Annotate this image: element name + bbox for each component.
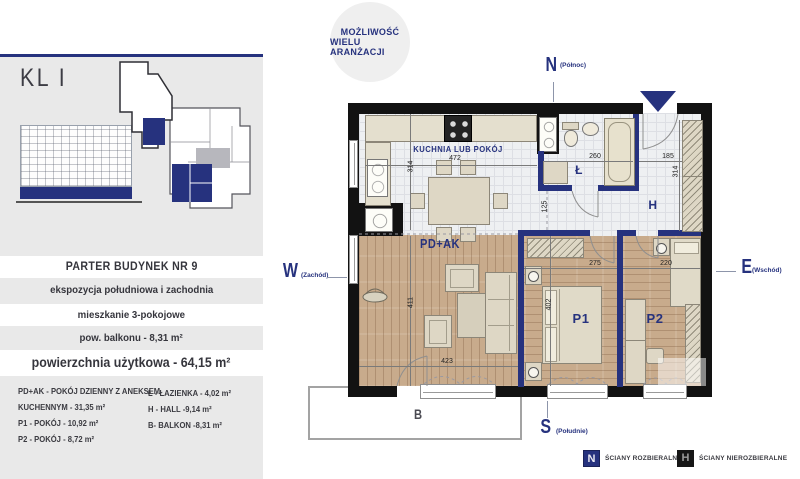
p2-door-arc <box>636 236 658 258</box>
badge-line2: WIELU ARANŻACJI <box>330 37 410 57</box>
door-swings-overlay <box>348 103 712 397</box>
compass-west: W <box>283 260 298 283</box>
entrance-door-arc <box>643 114 678 149</box>
dim-kitchen-depth: 314 <box>408 152 415 182</box>
compass-west-line <box>327 277 347 278</box>
compass-east: E <box>741 256 752 279</box>
legend-item: H - HALL -9,14 m² <box>148 401 231 417</box>
dim-line <box>365 165 537 166</box>
dim-line <box>359 366 518 367</box>
room-legend-col2: Ł - ŁAZIENKA - 4,02 m² H - HALL -9,14 m²… <box>148 385 240 433</box>
dim-line <box>524 268 617 269</box>
balcony-label: B <box>414 406 422 422</box>
room-label-kitchen: KUCHNIA LUB POKÓJ <box>413 144 503 154</box>
info-row-rooms: mieszkanie 3-pokojowe <box>0 304 263 326</box>
floorplan-page: KL I PARTER BUDYNEK NR 9 ekspozycja połu… <box>0 0 800 479</box>
compass-east-line <box>716 271 736 272</box>
compass-south-label: (Południe) <box>556 428 588 435</box>
radiator-p1 <box>549 378 606 385</box>
legend-item: B- BALKON -8,31 m² <box>148 417 231 433</box>
room-label-living: PD+AK <box>415 236 466 251</box>
dim-entry-width: 185 <box>648 153 688 160</box>
dim-bath-width: 260 <box>575 153 615 160</box>
arrangement-badge: MOŻLIWOŚĆ WIELU ARANŻACJI <box>330 2 410 82</box>
elevation-ground-line <box>16 201 142 203</box>
dim-living-width: 423 <box>427 358 467 365</box>
legend-removable-walls-label: ŚCIANY ROZBIERALNE <box>605 455 682 462</box>
info-row-balcony-area: pow. balkonu - 8,31 m² <box>0 329 263 347</box>
legend-item: PD+AK - POKÓJ DZIENNY Z ANEKSEM <box>18 383 160 399</box>
info-row-title: PARTER BUDYNEK NR 9 <box>0 256 263 278</box>
compass-north-line <box>553 82 554 102</box>
legend-item: KUCHENNYM - 31,35 m² <box>18 399 160 415</box>
dim-kitchen-width: 472 <box>435 155 475 162</box>
keyplan-floor-overview <box>160 98 256 216</box>
compass-east-label: (Wschód) <box>752 267 782 274</box>
dim-hall-depth: 314 <box>673 157 680 187</box>
balcony-door-arc <box>397 356 427 386</box>
entrance-marker-triangle <box>640 91 676 112</box>
compass-south: S <box>540 416 551 439</box>
room-label-hall: H <box>643 198 663 212</box>
info-row-exposure: ekspozycja południowa i zachodnia <box>0 281 263 299</box>
compass-west-label: (Zachód) <box>301 272 328 279</box>
watermark <box>658 358 706 386</box>
elevation-ground-floor-highlight <box>20 187 132 199</box>
room-label-bedroom1: P1 <box>571 311 591 326</box>
legend-item: P1 - POKÓJ - 10,92 m² <box>18 415 160 431</box>
compass-north-label: (Północ) <box>560 62 586 69</box>
legend-item: Ł - ŁAZIENKA - 4,02 m² <box>148 385 231 401</box>
p1-door-arc <box>590 236 614 263</box>
dim-line <box>623 268 701 269</box>
dim-p1-width: 275 <box>575 260 615 267</box>
dim-line <box>544 161 633 162</box>
dim-corridor: 125 <box>542 192 549 222</box>
room-label-bath: Ł <box>569 163 589 177</box>
legend-item: P2 - POKÓJ - 8,72 m² <box>18 431 160 447</box>
floor-plan: 472 314 411 423 125 260 185 314 275 402 … <box>348 103 712 397</box>
legend-removable-walls-swatch: N <box>583 450 600 467</box>
bath-door-arc <box>572 191 598 217</box>
dim-living-depth: 411 <box>408 288 415 318</box>
room-label-bedroom2: P2 <box>645 311 665 326</box>
info-row-usable-area: powierzchnia użytkowa - 64,15 m² <box>0 350 263 376</box>
radiator-living <box>424 377 494 385</box>
legend-fixed-walls-label: ŚCIANY NIEROZBIERALNE <box>699 455 787 462</box>
keyplan-upper-outline <box>112 60 174 152</box>
compass-north: N <box>545 54 557 77</box>
staircase-label: KL I <box>20 64 67 93</box>
legend-fixed-walls-swatch: H <box>677 450 694 467</box>
dim-p2-width: 220 <box>646 260 686 267</box>
dim-p1-depth: 402 <box>546 290 553 320</box>
badge-line1: MOŻLIWOŚĆ <box>341 27 400 37</box>
